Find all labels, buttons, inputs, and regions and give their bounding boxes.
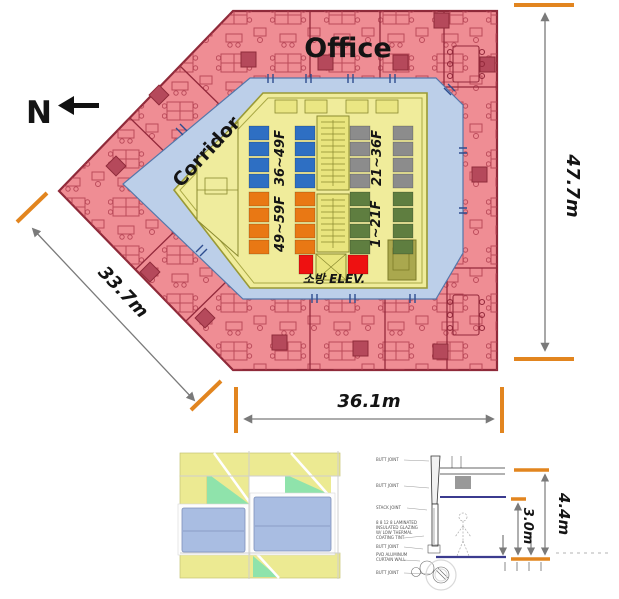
bank-label-49-59f: 49~59F (273, 196, 288, 253)
north-indicator: N (26, 95, 99, 131)
callout-butt-joint-2: BUTT JOINT (376, 483, 399, 488)
dim-right-height: 47.7m (562, 153, 583, 217)
bank-label-36-49f: 36~49F (273, 130, 288, 186)
north-arrow-shaft (72, 103, 99, 108)
callout-glazing-spec-4: COATING TINT (376, 535, 405, 540)
office-label: Office (304, 33, 391, 64)
callout-labels: BUTT JOINT BUTT JOINT STACK JOINT 8 8 12… (376, 457, 418, 575)
callout-butt-joint-4: BUTT JOINT (376, 570, 399, 575)
dim-bottom-width: 36.1m (337, 391, 400, 412)
callout-butt-joint-3: BUTT JOINT (376, 544, 399, 549)
callout-stack-joint: STACK JOINT (376, 505, 402, 510)
curtain-wall-elevation-detail (177, 451, 342, 579)
callout-aluminum-2: CURTAIN WALL (376, 557, 406, 562)
north-label: N (26, 95, 52, 131)
floor-plan-figure: 36~49F 21~36F 49~59F 1~21F 소방 ELEV. Offi… (0, 0, 619, 599)
human-figure (455, 513, 471, 556)
fire-elevator-label: 소방 ELEV. (303, 272, 365, 286)
stair-shafts (316, 116, 349, 280)
level-lines (436, 497, 506, 557)
office-floor-plate: 36~49F 21~36F 49~59F 1~21F 소방 ELEV. Offi… (59, 11, 497, 370)
section-linework (428, 456, 505, 553)
bank-label-21-36f: 21~36F (370, 130, 385, 186)
callout-butt-joint-1: BUTT JOINT (376, 457, 399, 462)
dim-vision-height: 3.0m (520, 508, 535, 545)
diagram-canvas: 36~49F 21~36F 49~59F 1~21F 소방 ELEV. Offi… (0, 0, 619, 599)
callout-leaders (404, 460, 430, 574)
dim-floor-height: 4.4m (555, 492, 573, 535)
north-arrow-icon (58, 96, 74, 115)
level-tick-marks (505, 562, 541, 571)
wall-section-detail: BUTT JOINT BUTT JOINT STACK JOINT 8 8 12… (376, 456, 612, 590)
bank-label-1-21f: 1~21F (369, 200, 384, 247)
